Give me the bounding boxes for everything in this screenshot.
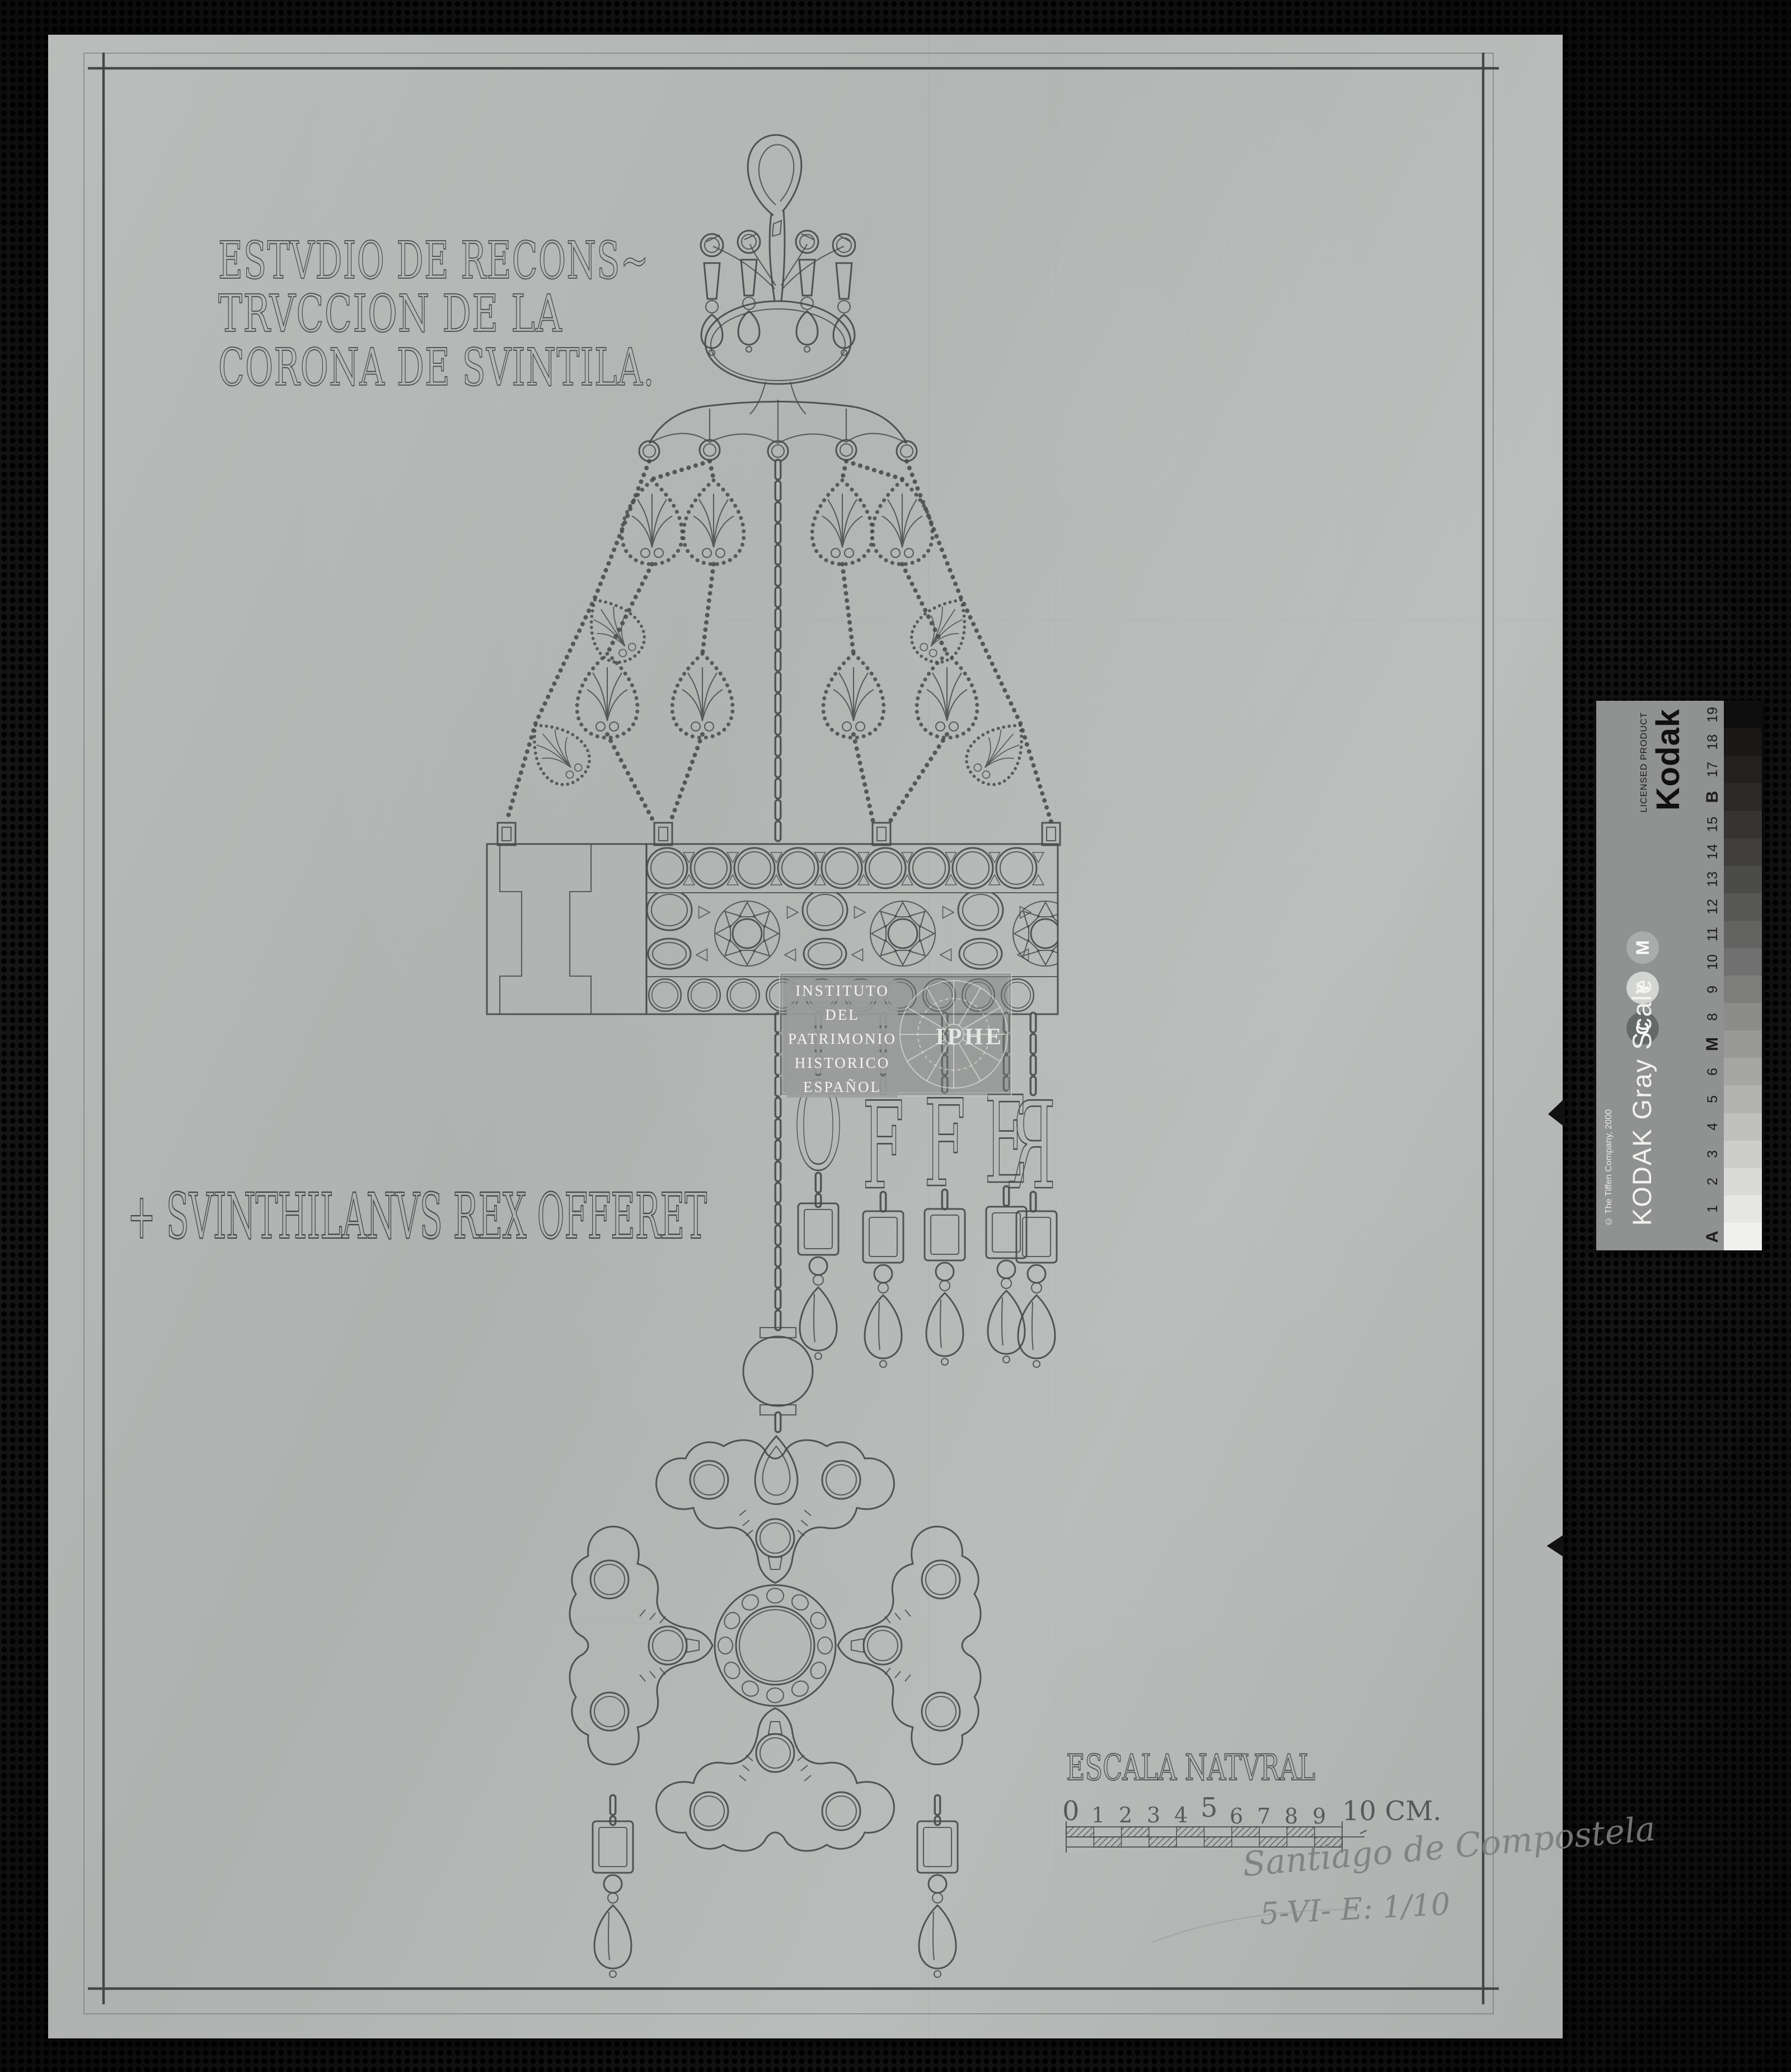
kodak-number-rail: A123456M89101112131415B171819	[1701, 701, 1724, 1250]
kodak-number-label: 10	[1705, 954, 1721, 970]
title-line-2: TRVCCION DE LA	[218, 284, 562, 344]
band-middle-register	[647, 890, 1078, 969]
cross-arm-pendants	[593, 1798, 958, 1977]
kodak-number-cell: 18	[1701, 728, 1724, 756]
kodak-number-cell: 5	[1701, 1085, 1724, 1113]
cross-center-medallion	[715, 1585, 836, 1706]
watermark-line: PATRIMONIO	[787, 1028, 898, 1049]
kodak-number-label: 12	[1705, 899, 1721, 915]
kodak-number-label: 13	[1705, 871, 1721, 887]
kodak-gray-patch	[1724, 756, 1762, 783]
kodak-number-label: 6	[1705, 1068, 1721, 1076]
kodak-gray-patch	[1724, 921, 1762, 948]
kodak-number-cell: 12	[1701, 893, 1724, 921]
kodak-number-label: 17	[1705, 762, 1721, 777]
kodak-number-label: 18	[1705, 734, 1721, 750]
watermark-line: ESPAÑOL	[787, 1076, 898, 1098]
ruler-tick: 9	[1312, 1804, 1326, 1829]
kodak-gray-patch	[1724, 1113, 1762, 1141]
watermark-line: INSTITUTO	[787, 980, 898, 1001]
kodak-brand-sub: LICENSED PRODUCT	[1639, 712, 1649, 813]
watermark-line: DEL	[787, 1004, 898, 1025]
title-line-3: CORONA DE SVINTILA.	[218, 337, 655, 397]
ruler-end-label: 10 CM.	[1342, 1796, 1441, 1827]
kodak-cmy-circle: M	[1626, 931, 1659, 964]
votive-cross	[570, 1440, 981, 1851]
ruler-tick: 1	[1091, 1803, 1105, 1827]
kodak-number-label: 4	[1705, 1123, 1721, 1131]
kodak-number-cell: A	[1701, 1223, 1724, 1250]
kodak-number-cell: 15	[1701, 811, 1724, 838]
ruler-tick: 7	[1257, 1804, 1270, 1829]
signature-place: Santiago de Compostela	[1241, 1810, 1657, 1885]
kodak-label-zone: LICENSED PRODUCT Kodak CYM KODAK Gray Sc…	[1596, 701, 1701, 1250]
kodak-copyright: © The Tiffen Company, 2000	[1604, 1109, 1614, 1226]
kodak-gray-patch	[1724, 728, 1762, 756]
kodak-gray-patch	[1724, 866, 1762, 893]
kodak-number-label: 3	[1705, 1150, 1721, 1158]
kodak-gray-patch	[1724, 838, 1762, 866]
kodak-number-label: 15	[1705, 817, 1721, 832]
iphe-watermark: INSTITUTO DEL PATRIMONIO HISTORICO ESPAÑ…	[779, 972, 1012, 1096]
kodak-number-cell: 4	[1701, 1113, 1724, 1141]
hook-arm-pendants	[701, 231, 855, 355]
kodak-number-cell: 2	[1701, 1168, 1724, 1196]
kodak-gray-patch	[1724, 976, 1762, 1003]
kodak-number-cell: 11	[1701, 921, 1724, 948]
kodak-number-cell: B	[1701, 783, 1724, 810]
kodak-number-cell: 3	[1701, 1141, 1724, 1168]
kodak-gray-patch	[1724, 1223, 1762, 1250]
kodak-number-label: 8	[1705, 1013, 1721, 1021]
kodak-number-cell: 10	[1701, 948, 1724, 976]
ruler-tick: 5	[1201, 1792, 1218, 1823]
kodak-brand: LICENSED PRODUCT Kodak	[1639, 709, 1687, 813]
kodak-number-cell: 19	[1701, 701, 1724, 728]
kodak-brand-logo: Kodak	[1649, 709, 1687, 810]
band-top-register	[647, 848, 1044, 888]
kodak-gray-patch	[1724, 701, 1762, 728]
kodak-number-label: 2	[1705, 1178, 1721, 1185]
kodak-number-cell: 17	[1701, 756, 1724, 783]
votive-inscription: + SVINTHILANVS REX OFFERET	[128, 1180, 707, 1253]
kodak-cmy-letter: M	[1633, 940, 1653, 955]
kodak-number-label: 9	[1705, 986, 1721, 993]
kodak-gray-patch	[1724, 948, 1762, 976]
title-line-1: ESTVDIO DE RECONS~	[218, 231, 649, 290]
kodak-gray-patch	[1724, 1030, 1762, 1058]
kodak-gray-patch	[1724, 1168, 1762, 1196]
watermark-acronym: IPHE	[935, 1024, 1004, 1051]
kodak-number-cell: 14	[1701, 838, 1724, 866]
watermark-text: INSTITUTO DEL PATRIMONIO HISTORICO ESPAÑ…	[787, 980, 898, 1098]
kodak-scale-name: KODAK Gray Scale	[1626, 978, 1657, 1226]
kodak-gray-patch	[1724, 1196, 1762, 1223]
canopy	[639, 400, 917, 461]
watermark-line: HISTORICO	[787, 1052, 898, 1073]
kodak-number-label: A	[1703, 1231, 1722, 1243]
ruler-tick: 4	[1174, 1803, 1188, 1827]
kodak-number-cell: 9	[1701, 976, 1724, 1003]
archival-photo: ESTVDIO DE RECONS~ TRVCCION DE LA CORONA…	[0, 0, 1791, 2072]
knob-bulb	[705, 301, 851, 414]
kodak-gray-patch	[1724, 1003, 1762, 1030]
signature-date-scale: 5-VI- E: 1/10	[1259, 1886, 1451, 1932]
kodak-number-label: 14	[1705, 844, 1721, 860]
kodak-gray-patch	[1724, 893, 1762, 921]
kodak-number-cell: M	[1701, 1030, 1724, 1058]
kodak-number-cell: 8	[1701, 1003, 1724, 1030]
kodak-gray-scale-bar: LICENSED PRODUCT Kodak CYM KODAK Gray Sc…	[1596, 701, 1762, 1250]
kodak-gray-patch	[1724, 1058, 1762, 1085]
kodak-gray-patch	[1724, 1141, 1762, 1168]
title-block: ESTVDIO DE RECONS~ TRVCCION DE LA CORONA…	[218, 231, 655, 397]
kodak-number-label: M	[1703, 1037, 1722, 1051]
kodak-number-cell: 13	[1701, 866, 1724, 893]
kodak-number-label: 11	[1705, 927, 1721, 941]
ruler-tick: 8	[1284, 1804, 1298, 1829]
ruler-tick: 0	[1062, 1796, 1080, 1827]
pencil-annotations: Santiago de Compostela 5-VI- E: 1/10	[1153, 1810, 1657, 1942]
kodak-number-cell: 1	[1701, 1196, 1724, 1223]
sphere-finial	[743, 1328, 813, 1504]
ruler-tick: 6	[1230, 1804, 1243, 1829]
kodak-number-label: 5	[1705, 1095, 1721, 1103]
kodak-number-cell: 6	[1701, 1058, 1724, 1085]
kodak-gray-patch	[1724, 1085, 1762, 1113]
ruler-tick: 3	[1147, 1803, 1160, 1827]
kodak-number-label: 1	[1705, 1205, 1721, 1213]
kodak-patches	[1724, 701, 1762, 1250]
kodak-number-label: B	[1703, 791, 1722, 803]
kodak-number-label: 19	[1705, 707, 1721, 723]
kodak-gray-patch	[1724, 811, 1762, 838]
ruler-tick: 2	[1119, 1803, 1132, 1827]
kodak-gray-patch	[1724, 783, 1762, 810]
scale-label: ESCALA NATVRAL	[1066, 1747, 1315, 1789]
